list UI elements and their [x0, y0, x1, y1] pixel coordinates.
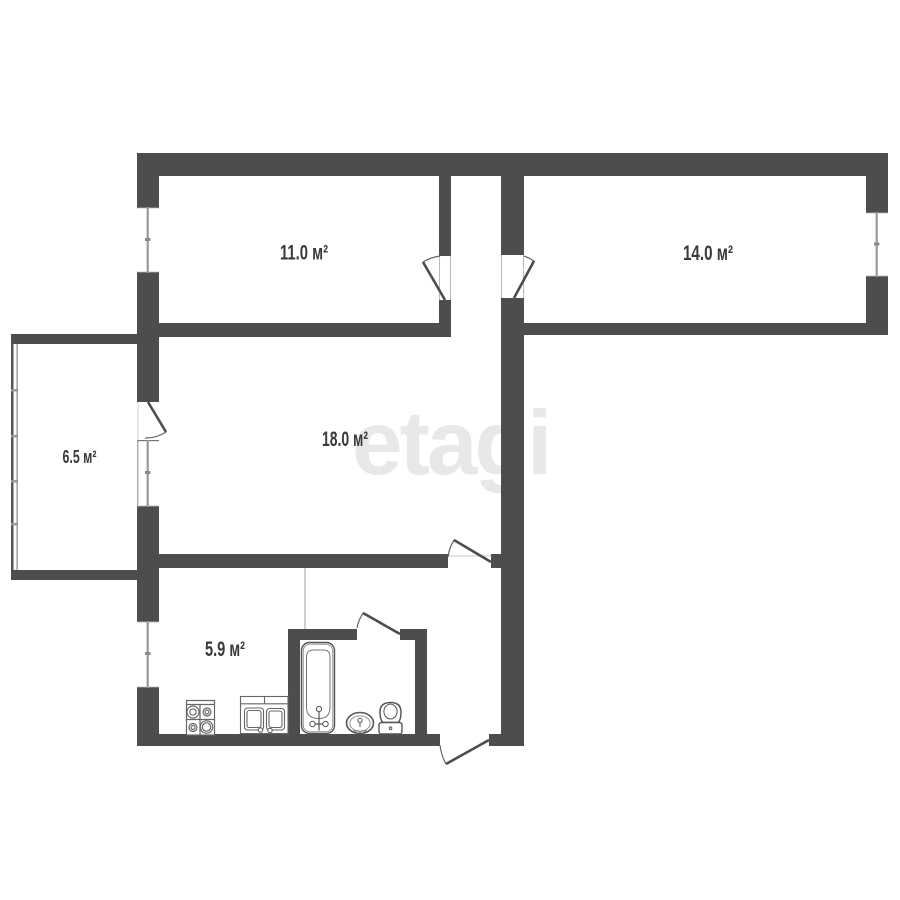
svg-text:18.0 м²: 18.0 м²	[322, 428, 368, 451]
svg-text:14.0 м²: 14.0 м²	[683, 242, 733, 265]
svg-text:11.0 м²: 11.0 м²	[280, 242, 328, 265]
svg-text:6.5 м²: 6.5 м²	[63, 447, 97, 467]
svg-text:5.9 м²: 5.9 м²	[205, 638, 245, 661]
